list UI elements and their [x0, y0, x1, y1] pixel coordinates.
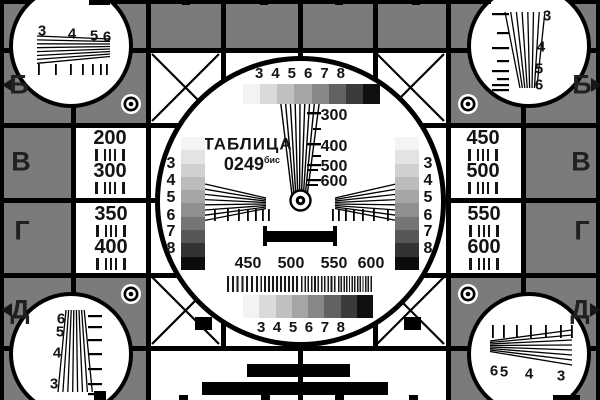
grayscale-step: [243, 84, 260, 104]
gray-label: 5: [288, 66, 296, 81]
grayscale-step: [181, 164, 205, 177]
burst-segment: [301, 276, 336, 292]
cropped-glyph: [335, 0, 343, 5]
grayscale-step: [341, 295, 357, 318]
resolution-number: 200: [93, 128, 126, 148]
grayscale-staircase-right: [395, 137, 419, 270]
gray-label: 6: [305, 320, 313, 335]
grayscale-step: [324, 295, 340, 318]
wedge-label: 5: [90, 29, 98, 44]
tv-test-card: 3 4 5 6 3 4 5 6 6 5 4 3 6 5 4 3 Б В Г Д …: [0, 0, 600, 400]
grayscale-staircase-top: [243, 84, 380, 104]
arrow-right-icon: [591, 78, 600, 92]
grayscale-step: [181, 203, 205, 216]
cropped-glyph: [412, 0, 420, 5]
gray-label: 7: [321, 320, 329, 335]
grayscale-step: [277, 84, 294, 104]
grayscale-step: [312, 84, 329, 104]
resolution-number: 400: [94, 237, 127, 257]
ticks-bottom-right: [492, 325, 573, 338]
test-pattern-linework: [0, 0, 600, 400]
arrow-right-icon: [590, 303, 600, 317]
row-letter-left: Д: [10, 297, 29, 324]
grayscale-step: [181, 243, 205, 256]
card-number-digits: 0249: [224, 154, 264, 174]
cropped-glyph: [476, 0, 491, 4]
grayscale-labels-bottom: 3 4 5 6 7 8: [257, 320, 345, 335]
cropped-glyph: [179, 395, 188, 400]
wedge-label: 3: [38, 24, 46, 39]
burst-segment: [264, 276, 299, 292]
gray-label: 7: [167, 224, 176, 240]
burst-label: 500: [278, 256, 305, 272]
resolution-ticks: [455, 182, 511, 194]
burst-segment: [338, 276, 373, 292]
card-title: ТАБЛИЦА: [203, 136, 292, 153]
ticks-top-left: [38, 64, 108, 75]
grayscale-step: [329, 84, 346, 104]
gray-label: 3: [424, 156, 433, 172]
burst-segment: [227, 276, 262, 292]
wedge-label: 6: [103, 30, 111, 45]
grayscale-step: [181, 177, 205, 190]
wedge-label: 6: [535, 78, 543, 93]
cropped-glyph: [89, 0, 110, 5]
gray-label: 3: [257, 320, 265, 335]
cropped-glyph: [182, 0, 190, 5]
cropped-glyph: [260, 0, 268, 5]
gray-label: 7: [320, 66, 328, 81]
grayscale-step: [181, 257, 205, 270]
grayscale-step: [363, 84, 380, 104]
grayscale-step: [395, 190, 419, 203]
wedge-label: 4: [537, 40, 545, 55]
grayscale-step: [395, 150, 419, 163]
burst-label: 450: [235, 256, 262, 272]
resolution-number: 600: [467, 237, 500, 257]
cropped-glyph: [94, 391, 106, 400]
grayscale-step: [181, 230, 205, 243]
bottom-short-bar: [247, 364, 350, 377]
gray-label: 6: [167, 208, 176, 224]
grayscale-step: [395, 257, 419, 270]
grayscale-step: [357, 295, 373, 318]
grayscale-step: [181, 150, 205, 163]
grayscale-step: [395, 164, 419, 177]
gray-label: 6: [424, 208, 433, 224]
row-letter-right: Д: [570, 297, 589, 324]
row-letter-left: Г: [14, 218, 29, 245]
resolution-ticks: [456, 258, 512, 270]
gray-label: 8: [337, 66, 345, 81]
grayscale-step: [346, 84, 363, 104]
gray-label: 3: [167, 156, 176, 172]
grayscale-step: [292, 295, 308, 318]
frequency-burst-bar: [227, 276, 373, 292]
wedge-scale-number: 300: [321, 108, 348, 124]
resolution-number: 350: [94, 204, 127, 224]
gray-label: 3: [255, 66, 263, 81]
wedge-label: 4: [53, 346, 61, 361]
wedge-label: 3: [557, 369, 565, 384]
grayscale-step: [181, 217, 205, 230]
grayscale-step: [181, 137, 205, 150]
grayscale-step: [395, 137, 419, 150]
resolution-ticks: [83, 258, 139, 270]
wedge-label: 3: [543, 9, 551, 24]
row-letter-right: Б: [572, 72, 591, 99]
cropped-glyph: [409, 395, 418, 400]
grayscale-step: [395, 203, 419, 216]
gray-label: 5: [424, 190, 433, 206]
cropped-glyph: [553, 395, 580, 400]
grayscale-step: [243, 295, 259, 318]
grayscale-step: [395, 243, 419, 256]
wedge-label: 6: [490, 364, 498, 379]
grayscale-step: [395, 217, 419, 230]
gray-label: 4: [424, 173, 433, 189]
wedge-label: 4: [68, 27, 76, 42]
gray-label: 4: [273, 320, 281, 335]
resolution-number: 450: [466, 128, 499, 148]
gray-label: 8: [167, 241, 176, 257]
grayscale-staircase-bottom: [243, 295, 373, 318]
grayscale-staircase-left: [181, 137, 205, 270]
row-letter-left: Б: [9, 72, 28, 99]
grayscale-labels-top: 3 4 5 6 7 8: [255, 66, 345, 81]
gray-label: 5: [167, 190, 176, 206]
wedge-scale-number: 600: [321, 174, 348, 190]
cropped-glyph: [261, 395, 270, 400]
grayscale-step: [260, 84, 277, 104]
grayscale-step: [181, 190, 205, 203]
grayscale-step: [308, 295, 324, 318]
row-letter-right: Г: [574, 218, 589, 245]
grayscale-step: [259, 295, 275, 318]
resolution-number: 300: [93, 161, 126, 181]
wedge-label: 4: [525, 367, 533, 382]
grayscale-step: [395, 177, 419, 190]
gray-label: 7: [424, 224, 433, 240]
gray-label: 6: [304, 66, 312, 81]
grayscale-step: [294, 84, 311, 104]
bottom-long-bar: [202, 382, 388, 395]
ticks-bottom-left: [88, 315, 102, 395]
row-letter-right: В: [571, 149, 591, 176]
card-number-suffix: бис: [264, 155, 280, 165]
wedge-label: 3: [50, 377, 58, 392]
burst-label: 550: [321, 256, 348, 272]
gray-label: 8: [424, 241, 433, 257]
resolution-ticks: [82, 182, 138, 194]
grayscale-step: [395, 230, 419, 243]
ticks-top-right: [492, 13, 509, 91]
gray-label: 4: [271, 66, 279, 81]
wedge-label: 5: [500, 365, 508, 380]
grayscale-step: [276, 295, 292, 318]
row-letter-left: В: [11, 149, 31, 176]
wedge-label: 5: [535, 62, 543, 77]
gray-label: 5: [289, 320, 297, 335]
gray-label: 8: [337, 320, 345, 335]
resolution-number: 500: [466, 161, 499, 181]
wedge-label: 5: [56, 325, 64, 340]
burst-label: 600: [358, 256, 385, 272]
wedge-scale-number: 400: [321, 139, 348, 155]
cropped-glyph: [335, 395, 344, 400]
card-number: 0249бис: [224, 155, 280, 173]
center-bullseye-icon: [291, 191, 311, 211]
resolution-number: 550: [467, 204, 500, 224]
gray-label: 4: [167, 173, 176, 189]
wedge-scale-dashes: [307, 112, 321, 186]
